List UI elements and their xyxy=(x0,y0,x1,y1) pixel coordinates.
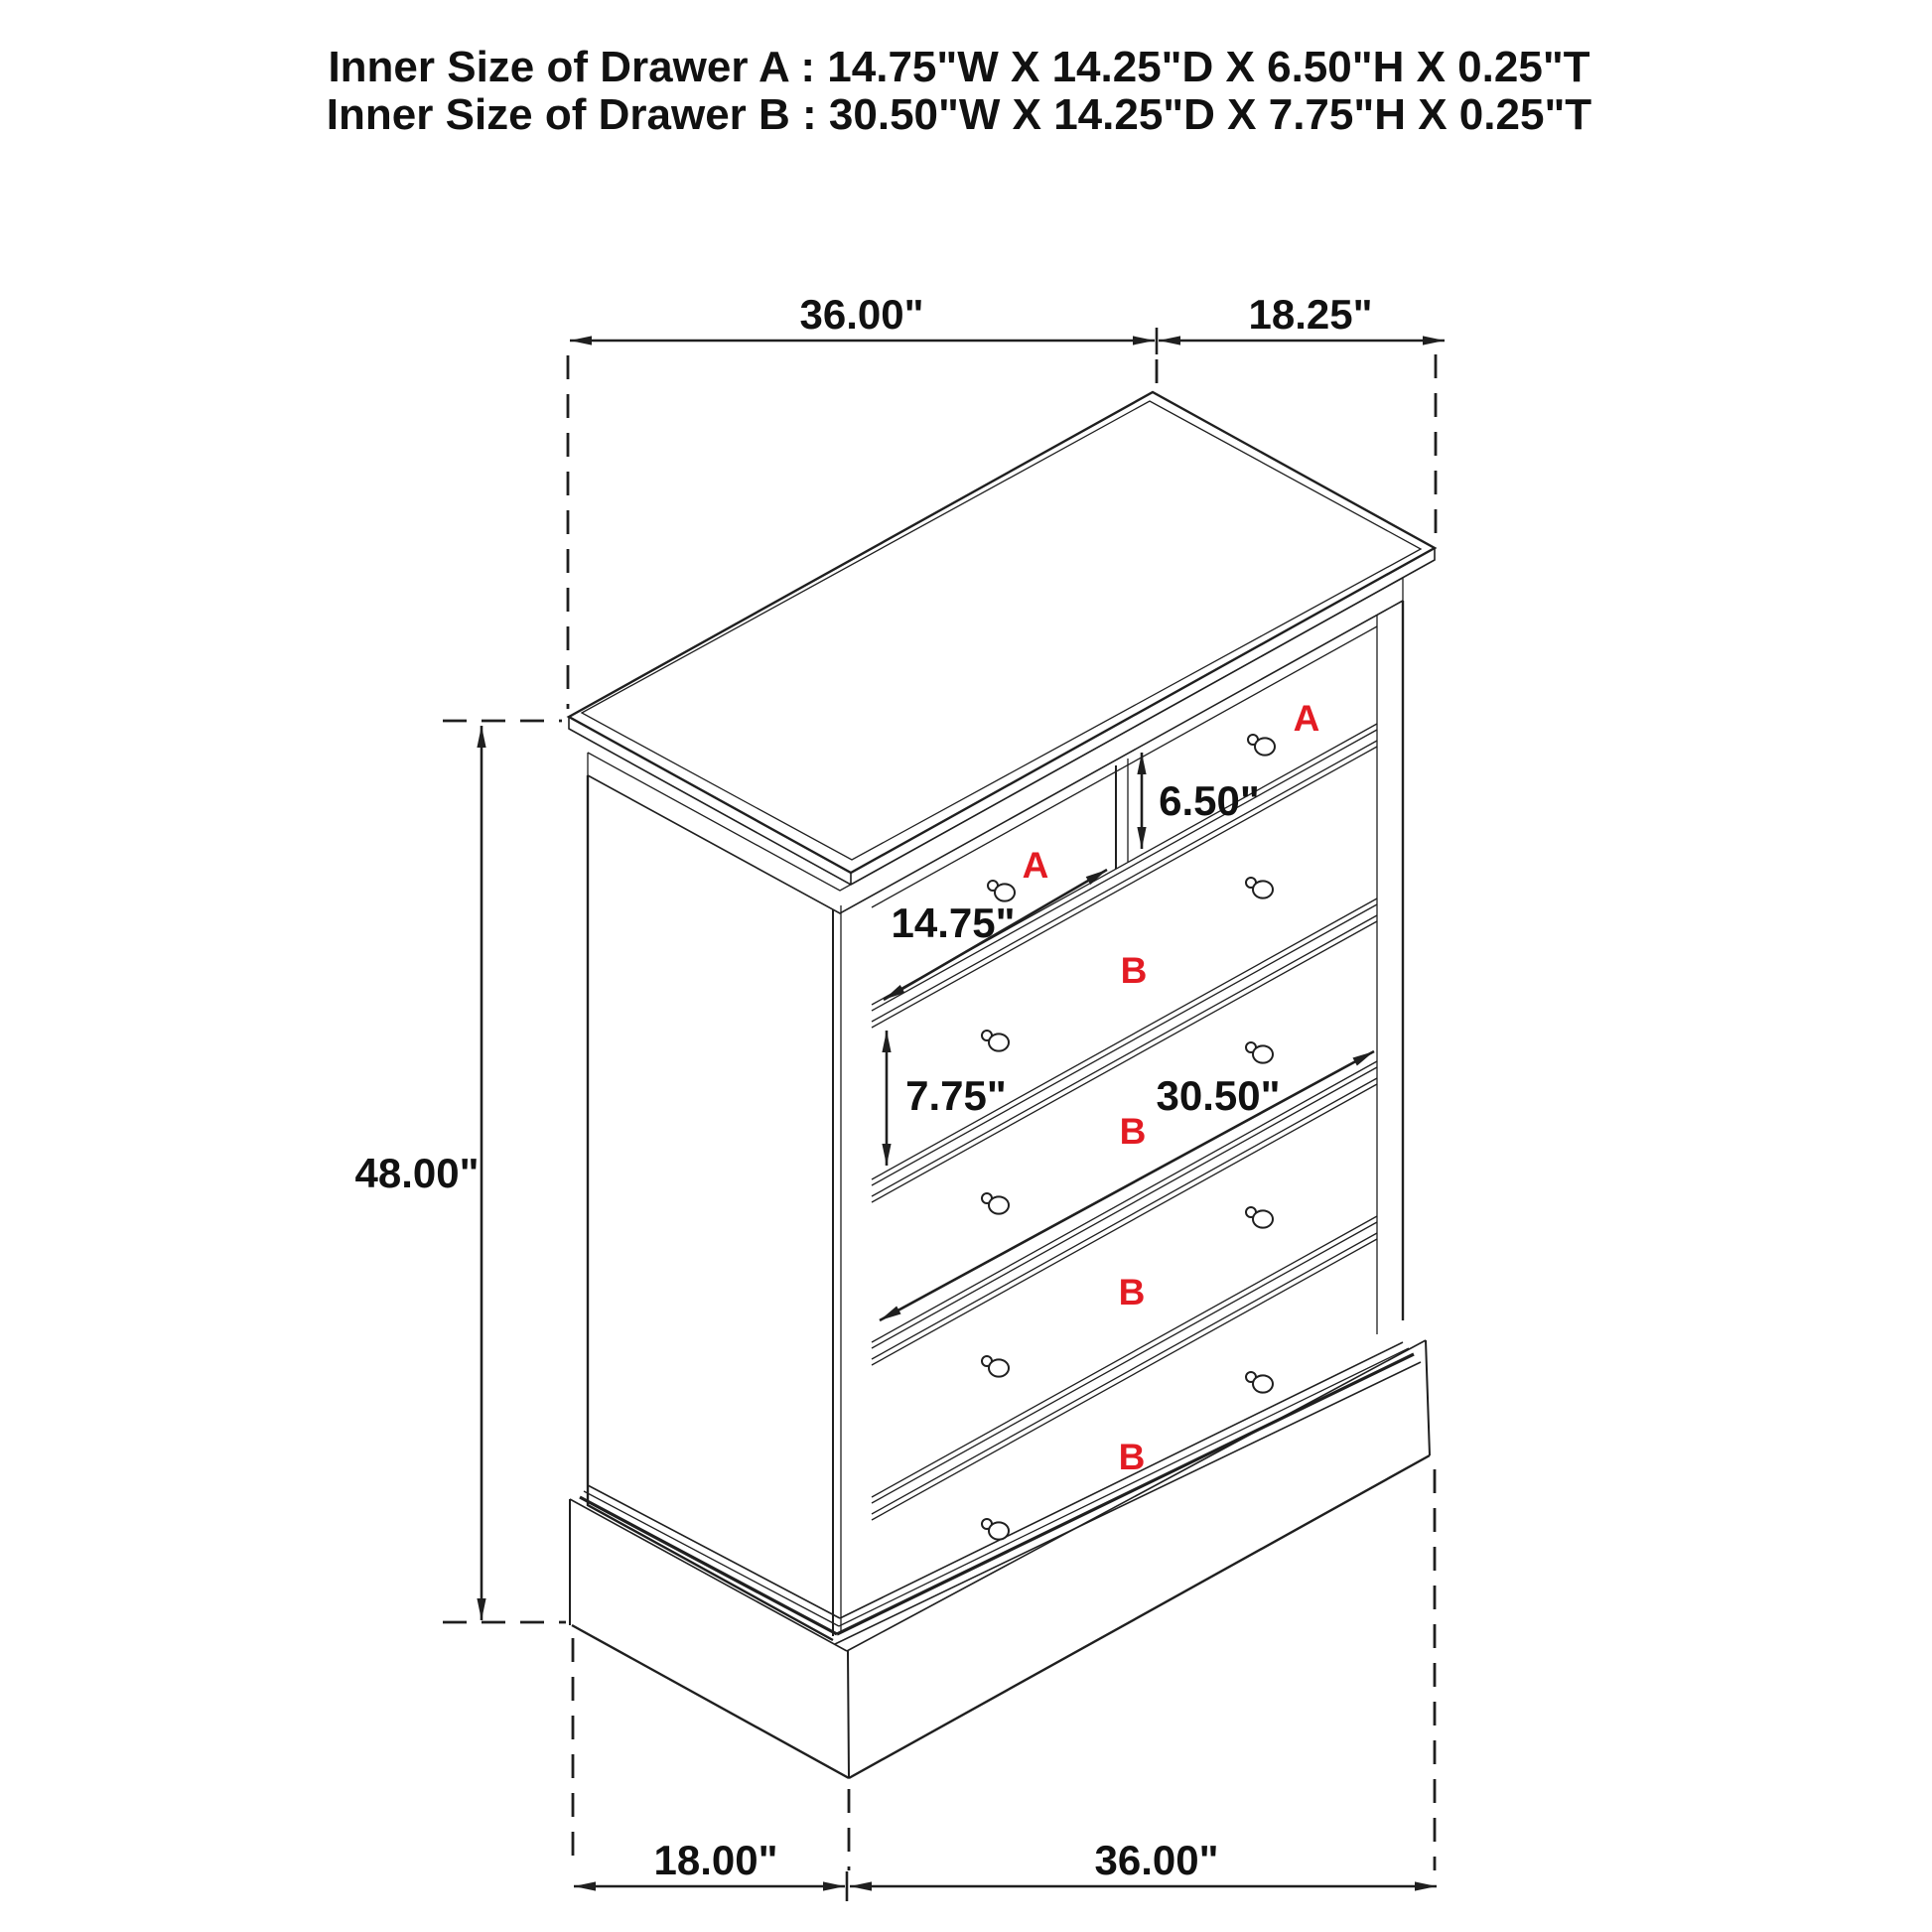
side-panel xyxy=(588,775,841,1640)
under-top-molding xyxy=(588,578,1403,913)
base-plinth xyxy=(570,1340,1430,1778)
base-cap-front-mid xyxy=(839,1348,1409,1626)
drawer-a-top-bevel xyxy=(872,626,1377,907)
knob-b4-right xyxy=(1246,1372,1273,1393)
dim-label-top-width: 36.00" xyxy=(799,291,923,338)
base-cap-front-top xyxy=(840,1342,1403,1618)
title-line-1: Inner Size of Drawer A : 14.75"W X 14.25… xyxy=(328,43,1589,91)
dresser-dimension-diagram: Inner Size of Drawer A : 14.75"W X 14.25… xyxy=(0,0,1932,1932)
label-drawer-b3: B xyxy=(1119,1272,1146,1312)
base-cap-side-mid xyxy=(584,1491,839,1626)
knob-b3-right xyxy=(1246,1207,1273,1228)
molding-band-top xyxy=(588,578,1403,891)
dim-label-base-depth: 18.00" xyxy=(653,1837,777,1883)
label-drawer-a-right: A xyxy=(1294,698,1320,739)
dim-label-top-depth: 18.25" xyxy=(1248,291,1372,338)
diagram-page: Inner Size of Drawer A : 14.75"W X 14.25… xyxy=(0,0,1932,1932)
knob-b2-right xyxy=(1246,1042,1273,1063)
title-line-2: Inner Size of Drawer B : 30.50"W X 14.25… xyxy=(327,90,1592,139)
dim-label-base-width: 36.00" xyxy=(1094,1837,1218,1883)
knob-b3-left xyxy=(982,1356,1009,1377)
knob-b4-left xyxy=(982,1519,1009,1540)
dim-label-overall-height: 48.00" xyxy=(354,1150,479,1196)
label-drawer-a-left: A xyxy=(1023,845,1049,886)
knob-b1-right xyxy=(1246,878,1273,898)
base-cap-side-accent xyxy=(580,1497,837,1634)
dim-label-drawer-a-width: 14.75" xyxy=(891,899,1015,946)
dim-label-drawer-a-height: 6.50" xyxy=(1159,777,1260,824)
side-panel-outline xyxy=(588,775,833,1640)
right-stile xyxy=(1377,601,1403,1334)
label-drawer-b4: B xyxy=(1119,1437,1146,1477)
knob-b1-left xyxy=(982,1031,1009,1051)
plinth-front-verticals xyxy=(848,1340,1430,1778)
plinth-front-top xyxy=(847,1340,1426,1651)
top-board xyxy=(569,392,1435,885)
base-cap-side-top xyxy=(588,1485,840,1618)
plinth-side-bottom xyxy=(572,1625,849,1778)
plinth-side-top xyxy=(570,1499,847,1651)
knob-a-right xyxy=(1248,735,1275,756)
dim-label-drawer-b-height: 7.75" xyxy=(905,1072,1007,1119)
base-cap-front-lower xyxy=(835,1362,1421,1644)
molding-band-bottom xyxy=(588,601,1403,913)
title-block: Inner Size of Drawer A : 14.75"W X 14.25… xyxy=(327,43,1592,139)
label-drawer-b2: B xyxy=(1120,1111,1147,1152)
label-drawer-b1: B xyxy=(1121,950,1148,991)
base-cap-front-accent xyxy=(837,1354,1414,1634)
dim-label-drawer-b-width: 30.50" xyxy=(1156,1072,1280,1119)
molding-band-ends xyxy=(588,578,1403,775)
plinth-front-bottom xyxy=(849,1455,1430,1778)
knob-a-left xyxy=(988,881,1015,901)
knob-b2-left xyxy=(982,1193,1009,1214)
